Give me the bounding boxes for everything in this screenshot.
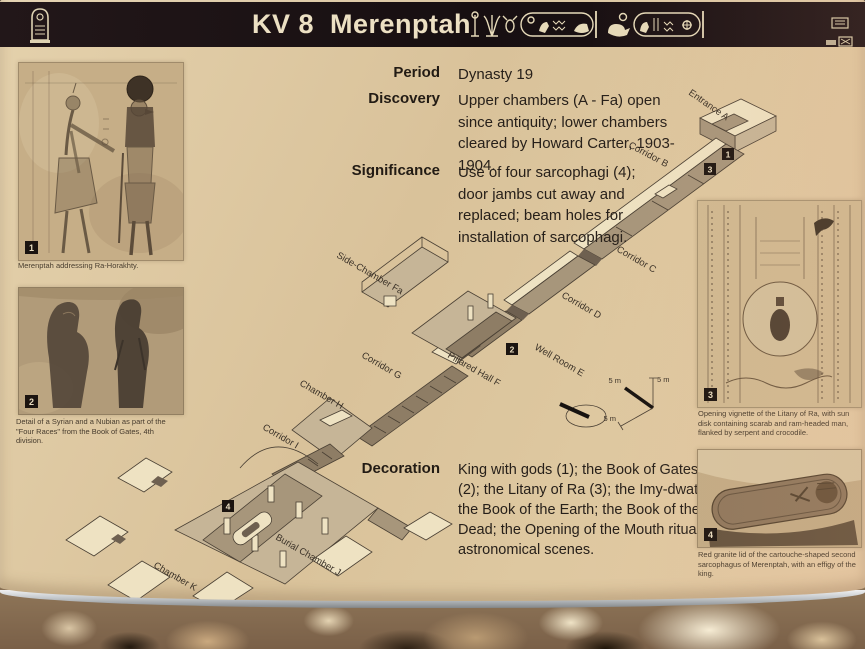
figure-3-number-badge: 3 xyxy=(704,388,717,401)
label-corridor-d: Corridor D xyxy=(560,290,604,322)
figure-1-number-badge: 1 xyxy=(25,241,38,254)
scale-label-horizontal: 5 m xyxy=(603,414,616,423)
figure-3-caption: Opening vignette of the Litany of Ra, wi… xyxy=(698,409,856,438)
label-decoration: Decoration xyxy=(295,460,440,477)
photo-scene: KV 8 Merenptah xyxy=(0,0,865,649)
figure-4-caption: Red granite lid of the cartouche-shaped … xyxy=(698,550,858,579)
svg-text:1: 1 xyxy=(726,150,731,160)
figure-2-number-badge: 2 xyxy=(25,395,38,408)
label-corridor-g: Corridor G xyxy=(360,350,404,382)
svg-text:3: 3 xyxy=(708,165,713,175)
scale-label-vertical: 5 m xyxy=(657,375,670,384)
four-races-artwork xyxy=(19,288,183,414)
marker-1: 1 xyxy=(722,148,734,160)
label-period: Period xyxy=(295,64,440,81)
photo-sarcophagus-lid: 4 xyxy=(697,449,862,548)
svg-text:2: 2 xyxy=(510,345,515,355)
sarcophagus-artwork xyxy=(698,450,861,547)
information-sign: KV 8 Merenptah xyxy=(0,0,865,601)
photo-merenptah-relief: 1 xyxy=(18,62,184,261)
marker-3: 3 xyxy=(704,163,716,175)
figure-2-caption: Detail of a Syrian and a Nubian as part … xyxy=(16,417,180,446)
value-significance: Use of four sarcophagi (4); door jambs c… xyxy=(458,162,663,248)
litany-artwork xyxy=(698,201,861,407)
label-corridor-c: Corridor C xyxy=(615,244,659,276)
label-discovery: Discovery xyxy=(295,90,440,107)
photo-syrian-nubian-relief: 2 xyxy=(18,287,184,415)
svg-text:4: 4 xyxy=(226,502,231,512)
figure-4-number-badge: 4 xyxy=(704,528,717,541)
figure-1-caption: Merenptah addressing Ra-Horakhty. xyxy=(18,261,178,271)
value-period: Dynasty 19 xyxy=(458,64,688,86)
marker-2: 2 xyxy=(506,343,518,355)
photo-litany-of-ra-vignette: 3 xyxy=(697,200,862,408)
scale-labels: 5 m 5 m 5 m xyxy=(603,375,669,423)
label-well-room-e: Well Room E xyxy=(533,342,586,379)
scale-label-diagonal: 5 m xyxy=(608,376,621,385)
marker-4: 4 xyxy=(222,500,234,512)
value-decoration: King with gods (1); the Book of Gates (2… xyxy=(458,460,710,560)
relief-artwork xyxy=(19,63,183,260)
label-significance: Significance xyxy=(295,162,440,179)
